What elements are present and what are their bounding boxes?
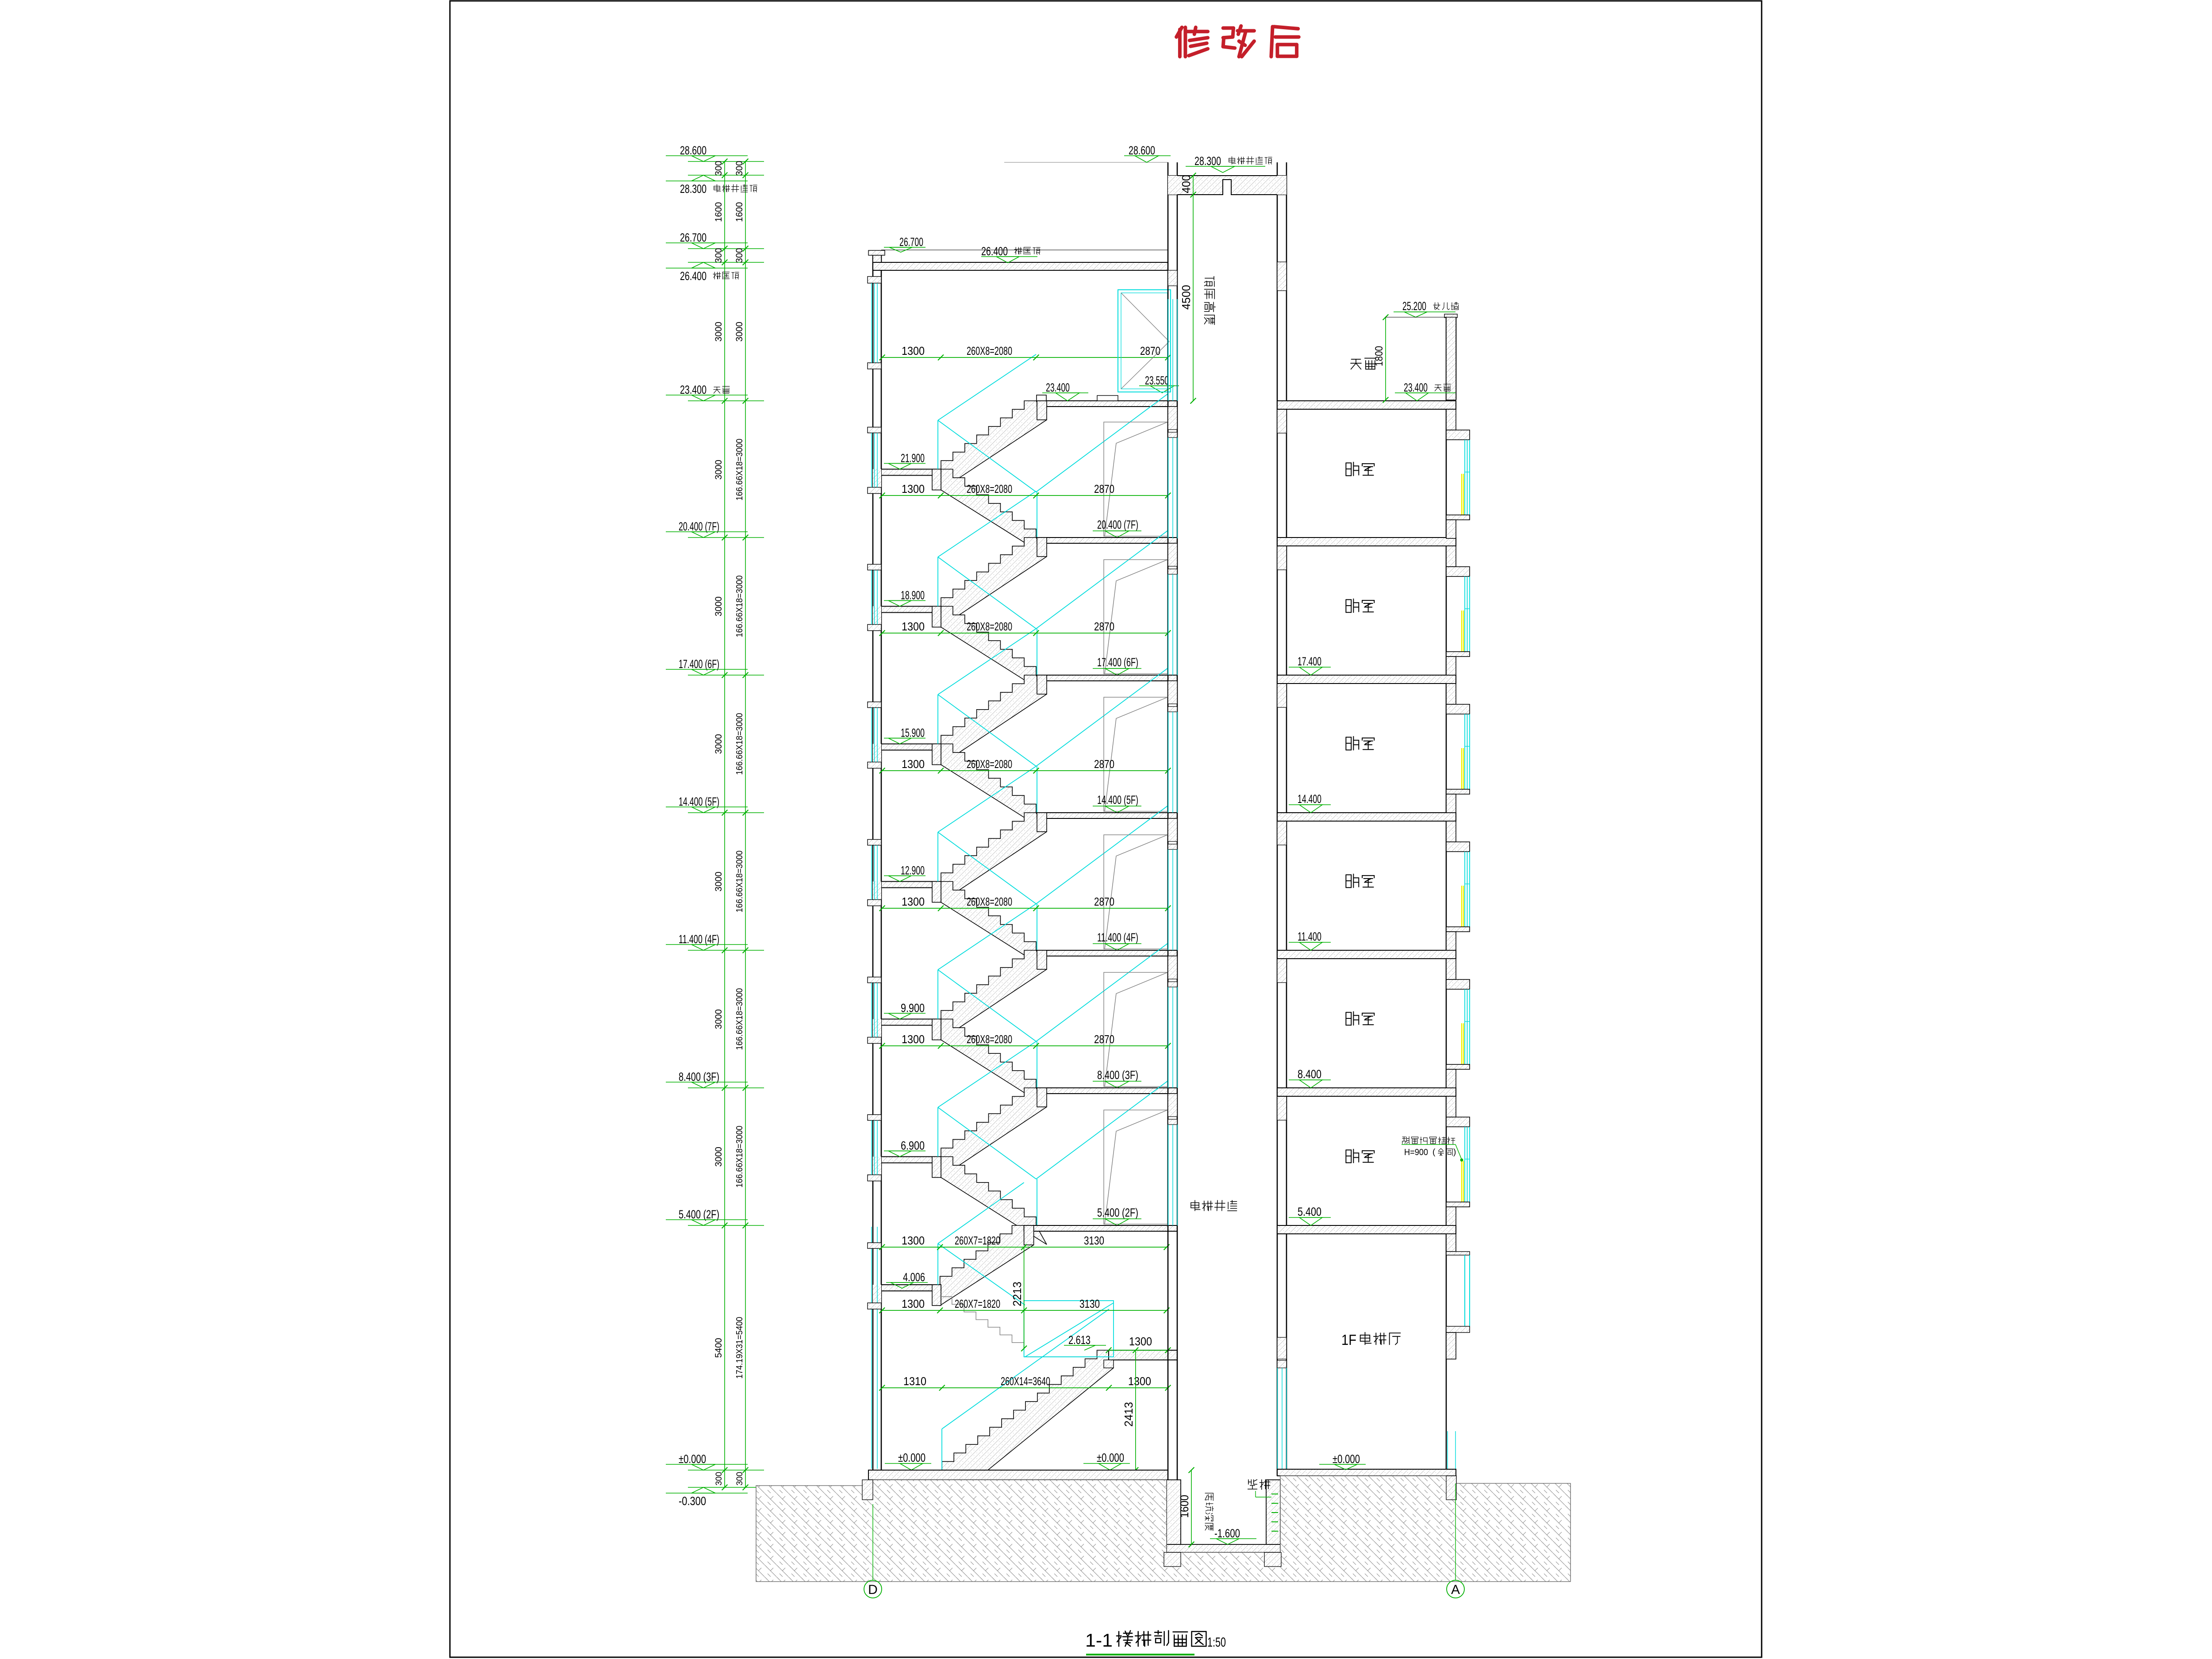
svg-text:26.400: 26.400 — [981, 245, 1008, 258]
svg-text:21.900: 21.900 — [901, 452, 925, 465]
svg-text:1:50: 1:50 — [1207, 1635, 1226, 1650]
svg-text:260X8=2080: 260X8=2080 — [967, 757, 1012, 771]
svg-text:-0.300: -0.300 — [679, 1494, 706, 1508]
svg-text:28.300: 28.300 — [680, 182, 707, 196]
svg-text:4500: 4500 — [1179, 285, 1193, 310]
svg-text:28.600: 28.600 — [680, 144, 707, 157]
svg-text:20.400 (7F): 20.400 (7F) — [679, 520, 719, 533]
svg-text:28.300: 28.300 — [1194, 154, 1221, 168]
svg-text:2870: 2870 — [1094, 1033, 1114, 1046]
svg-text:300: 300 — [734, 161, 745, 176]
svg-text:2870: 2870 — [1094, 895, 1114, 908]
svg-text:1300: 1300 — [902, 482, 925, 495]
svg-text:2.613: 2.613 — [1068, 1333, 1091, 1347]
svg-text:2870: 2870 — [1094, 482, 1114, 495]
svg-text:1300: 1300 — [902, 1234, 925, 1247]
svg-text:25.200: 25.200 — [1402, 300, 1426, 313]
svg-text:(: ( — [1432, 1148, 1436, 1157]
svg-text:260X8=2080: 260X8=2080 — [967, 482, 1012, 495]
svg-text:20.400 (7F): 20.400 (7F) — [1097, 518, 1138, 531]
svg-text:166.66X18=3000: 166.66X18=3000 — [735, 713, 745, 775]
svg-text:8.400 (3F): 8.400 (3F) — [1097, 1068, 1138, 1082]
svg-text:260X8=2080: 260X8=2080 — [967, 895, 1012, 908]
svg-text:±0.000: ±0.000 — [1097, 1451, 1124, 1464]
svg-text:H=900: H=900 — [1404, 1148, 1428, 1157]
svg-text:3000: 3000 — [714, 1009, 724, 1029]
svg-text:1600: 1600 — [734, 202, 745, 222]
svg-text:26.700: 26.700 — [680, 231, 707, 244]
svg-text:166.66X18=3000: 166.66X18=3000 — [735, 988, 745, 1050]
svg-text:3000: 3000 — [714, 322, 724, 342]
svg-text:±0.000: ±0.000 — [898, 1451, 926, 1464]
svg-text:26.400: 26.400 — [680, 269, 707, 283]
svg-text:18.900: 18.900 — [901, 589, 925, 602]
svg-text:260X14=3640: 260X14=3640 — [1001, 1375, 1050, 1388]
svg-text:300: 300 — [714, 161, 724, 176]
svg-text:11.400 (4F): 11.400 (4F) — [679, 933, 719, 946]
svg-text:±0.000: ±0.000 — [679, 1452, 706, 1466]
svg-text:1300: 1300 — [1129, 1335, 1152, 1348]
svg-text:166.66X18=3000: 166.66X18=3000 — [735, 576, 745, 637]
svg-text:11.400 (4F): 11.400 (4F) — [1097, 931, 1138, 944]
svg-text:14.400 (5F): 14.400 (5F) — [1097, 793, 1138, 806]
svg-text:2870: 2870 — [1094, 620, 1114, 633]
svg-text:1600: 1600 — [1178, 1495, 1191, 1518]
svg-text:6.900: 6.900 — [901, 1139, 925, 1152]
svg-text:1300: 1300 — [902, 620, 925, 633]
svg-text:260X8=2080: 260X8=2080 — [967, 1033, 1012, 1046]
svg-text:23.400: 23.400 — [1046, 381, 1070, 394]
svg-text:2413: 2413 — [1122, 1402, 1135, 1427]
svg-text:260X7=1820: 260X7=1820 — [955, 1234, 1000, 1247]
svg-text:1300: 1300 — [902, 1297, 925, 1310]
svg-text:-1.600: -1.600 — [1214, 1527, 1240, 1540]
svg-text:1300: 1300 — [902, 1033, 925, 1046]
svg-text:23.400: 23.400 — [1404, 381, 1428, 394]
svg-text:±0.000: ±0.000 — [1333, 1452, 1360, 1466]
svg-text:D: D — [868, 1582, 878, 1597]
svg-text:A: A — [1451, 1582, 1460, 1597]
svg-text:300: 300 — [714, 1472, 724, 1486]
svg-text:3000: 3000 — [714, 596, 724, 616]
svg-text:3130: 3130 — [1079, 1297, 1100, 1310]
svg-text:166.66X18=3000: 166.66X18=3000 — [735, 851, 745, 913]
svg-text:26.700: 26.700 — [899, 235, 923, 249]
svg-text:3000: 3000 — [714, 460, 724, 480]
svg-text:2870: 2870 — [1094, 757, 1114, 771]
svg-text:174.19X31=5400: 174.19X31=5400 — [735, 1317, 745, 1379]
svg-text:400: 400 — [1179, 175, 1193, 193]
svg-text:17.400 (6F): 17.400 (6F) — [679, 657, 719, 671]
svg-text:23.400: 23.400 — [680, 383, 707, 396]
svg-text:4.006: 4.006 — [903, 1271, 925, 1284]
svg-text:3130: 3130 — [1084, 1234, 1104, 1247]
svg-text:14.400 (5F): 14.400 (5F) — [679, 795, 719, 808]
svg-text:5400: 5400 — [714, 1338, 724, 1358]
svg-text:3000: 3000 — [714, 734, 724, 754]
svg-text:260X7=1820: 260X7=1820 — [955, 1297, 1000, 1310]
svg-text:166.66X18=3000: 166.66X18=3000 — [735, 439, 745, 501]
svg-text:5.400 (2F): 5.400 (2F) — [1097, 1206, 1138, 1219]
svg-text:14.400: 14.400 — [1298, 792, 1321, 806]
svg-text:1-1: 1-1 — [1085, 1630, 1113, 1651]
svg-text:1300: 1300 — [902, 895, 925, 908]
svg-text:3000: 3000 — [734, 322, 745, 342]
svg-text:300: 300 — [735, 1472, 745, 1486]
svg-text:11.400: 11.400 — [1298, 930, 1321, 943]
svg-text:1300: 1300 — [902, 344, 925, 357]
svg-text:260X8=2080: 260X8=2080 — [967, 620, 1012, 633]
svg-text:15.900: 15.900 — [901, 726, 925, 740]
svg-text:2213: 2213 — [1010, 1282, 1024, 1306]
svg-text:300: 300 — [714, 248, 724, 263]
svg-text:3000: 3000 — [714, 872, 724, 891]
svg-text:5.400 (2F): 5.400 (2F) — [679, 1208, 719, 1221]
svg-text:3000: 3000 — [714, 1147, 724, 1167]
svg-text:28.600: 28.600 — [1129, 144, 1155, 157]
svg-text:17.400 (6F): 17.400 (6F) — [1097, 656, 1138, 669]
svg-text:23.550: 23.550 — [1145, 374, 1169, 387]
svg-text:166.66X18=3000: 166.66X18=3000 — [735, 1126, 745, 1188]
svg-text:5.400: 5.400 — [1298, 1205, 1321, 1218]
svg-text:260X8=2080: 260X8=2080 — [967, 344, 1012, 357]
svg-text:12.900: 12.900 — [901, 864, 925, 877]
svg-text:1600: 1600 — [714, 202, 724, 222]
svg-text:8.400 (3F): 8.400 (3F) — [679, 1070, 719, 1083]
svg-text:): ) — [1453, 1148, 1456, 1157]
svg-text:1300: 1300 — [1128, 1375, 1151, 1388]
svg-text:17.400: 17.400 — [1298, 655, 1321, 668]
svg-text:8.400: 8.400 — [1298, 1068, 1321, 1081]
svg-text:1300: 1300 — [902, 757, 925, 771]
svg-text:1310: 1310 — [903, 1375, 926, 1388]
svg-text:9.900: 9.900 — [901, 1002, 925, 1015]
svg-text:1800: 1800 — [1373, 346, 1385, 366]
svg-text:1F: 1F — [1341, 1332, 1356, 1348]
svg-text:2870: 2870 — [1140, 344, 1160, 357]
svg-text:300: 300 — [734, 248, 745, 263]
